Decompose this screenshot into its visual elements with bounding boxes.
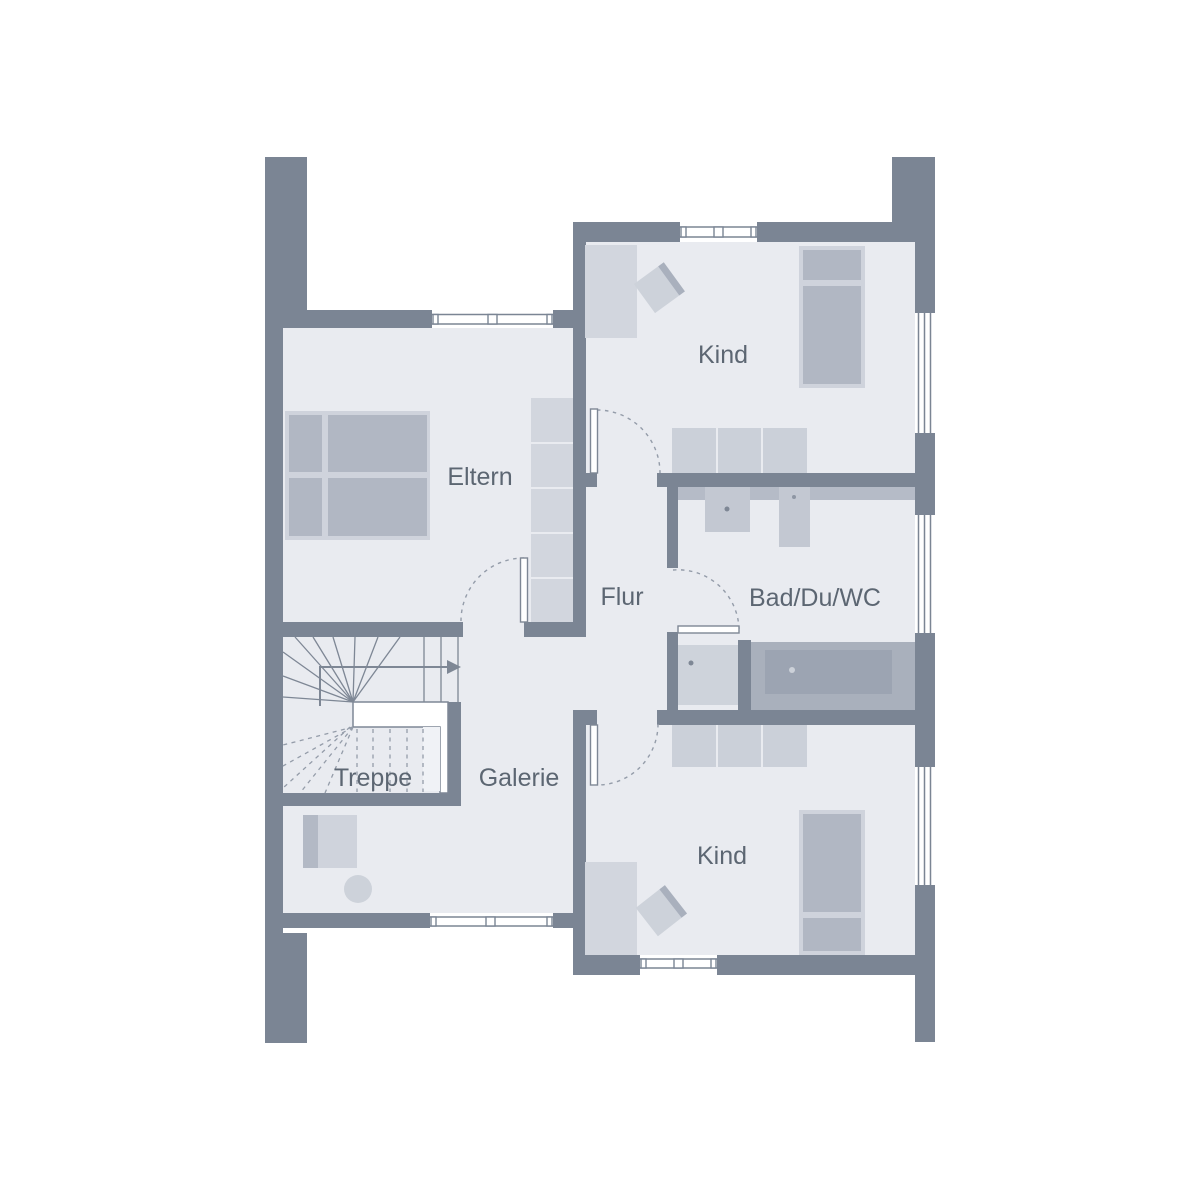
wall-left-bottom-column — [265, 933, 307, 1043]
room-label-treppe: Treppe — [334, 764, 412, 792]
shower-drain-icon — [689, 661, 694, 666]
wall-left — [265, 313, 283, 933]
window-kind-bottom — [640, 955, 717, 976]
bed-kind-top — [799, 246, 865, 388]
wall-eltern-bottom-left — [283, 622, 463, 637]
wall-eltern-bottom-right — [524, 622, 586, 637]
room-label-bad: Bad/Du/WC — [749, 584, 881, 612]
wall-right-seg1 — [915, 240, 935, 313]
door-leaf — [591, 725, 598, 785]
wall-eltern-top-right — [553, 310, 573, 328]
wall-galerie-bottom-left — [265, 913, 430, 928]
room-label-flur: Flur — [600, 583, 643, 611]
wall-bad-left-top — [667, 487, 678, 568]
bathtub — [751, 642, 915, 710]
toilet-mark-icon — [792, 495, 796, 499]
wall-bad-shower-strip — [738, 640, 751, 710]
bathtub-drain-icon — [789, 667, 795, 673]
shower — [678, 645, 738, 705]
stair-flight-strip — [423, 727, 440, 791]
room-label-kind-bottom: Kind — [697, 842, 747, 870]
wall-right-top-column — [892, 157, 935, 223]
wall-a-lower — [573, 725, 586, 955]
sideboard-kind-top — [672, 428, 807, 473]
window-right-bad — [915, 515, 935, 633]
window-galerie-bottom — [430, 913, 553, 934]
floor-plan-page: Kind Eltern Flur Bad/Du/WC Treppe Galeri… — [0, 0, 1200, 1200]
door-leaf — [678, 626, 739, 633]
desk-kind-top — [585, 245, 637, 338]
room-label-galerie: Galerie — [479, 764, 560, 792]
wall-w2-nib — [573, 710, 597, 725]
side-table-galerie — [344, 875, 372, 903]
bed-kind-bottom — [799, 810, 865, 955]
window-kind-top — [680, 222, 757, 242]
wall-right-seg2 — [915, 433, 935, 515]
desk-kind-bottom — [585, 862, 637, 955]
armchair-galerie — [303, 815, 357, 868]
room-label-eltern: Eltern — [447, 463, 512, 491]
wall-right-seg4 — [915, 885, 935, 957]
wardrobe-eltern — [531, 398, 573, 622]
wall-w1-nib — [573, 473, 597, 487]
wall-w2-main — [657, 710, 915, 725]
window-right-kind-bottom — [915, 767, 935, 885]
wall-kindbottom-bottom-left — [573, 955, 640, 975]
room-label-kind-top: Kind — [698, 341, 748, 369]
bed-eltern — [285, 411, 430, 540]
window-right-kind-top — [915, 313, 935, 433]
wall-eltern-top-left — [283, 310, 432, 328]
washbasin-tap-icon — [725, 507, 730, 512]
door-leaf — [591, 409, 598, 473]
door-leaf — [521, 558, 528, 622]
window-eltern-top — [432, 310, 553, 328]
wall-kind-top-left — [573, 222, 680, 242]
wall-right-seg3 — [915, 633, 935, 767]
wall-treppe-right — [448, 702, 461, 793]
wall-kindbottom-bottom-right — [717, 955, 935, 975]
wall-a-upper — [573, 222, 586, 637]
wall-left-top-column — [265, 157, 307, 313]
wall-kind-top-right — [757, 222, 935, 242]
floor-plan-drawing: Kind Eltern Flur Bad/Du/WC Treppe Galeri… — [0, 0, 1200, 1200]
wall-treppe-bottom — [283, 793, 461, 806]
sideboard-kind-bottom — [672, 725, 807, 767]
wall-w1-main — [657, 473, 915, 487]
wall-bad-left-bottom — [667, 632, 678, 710]
